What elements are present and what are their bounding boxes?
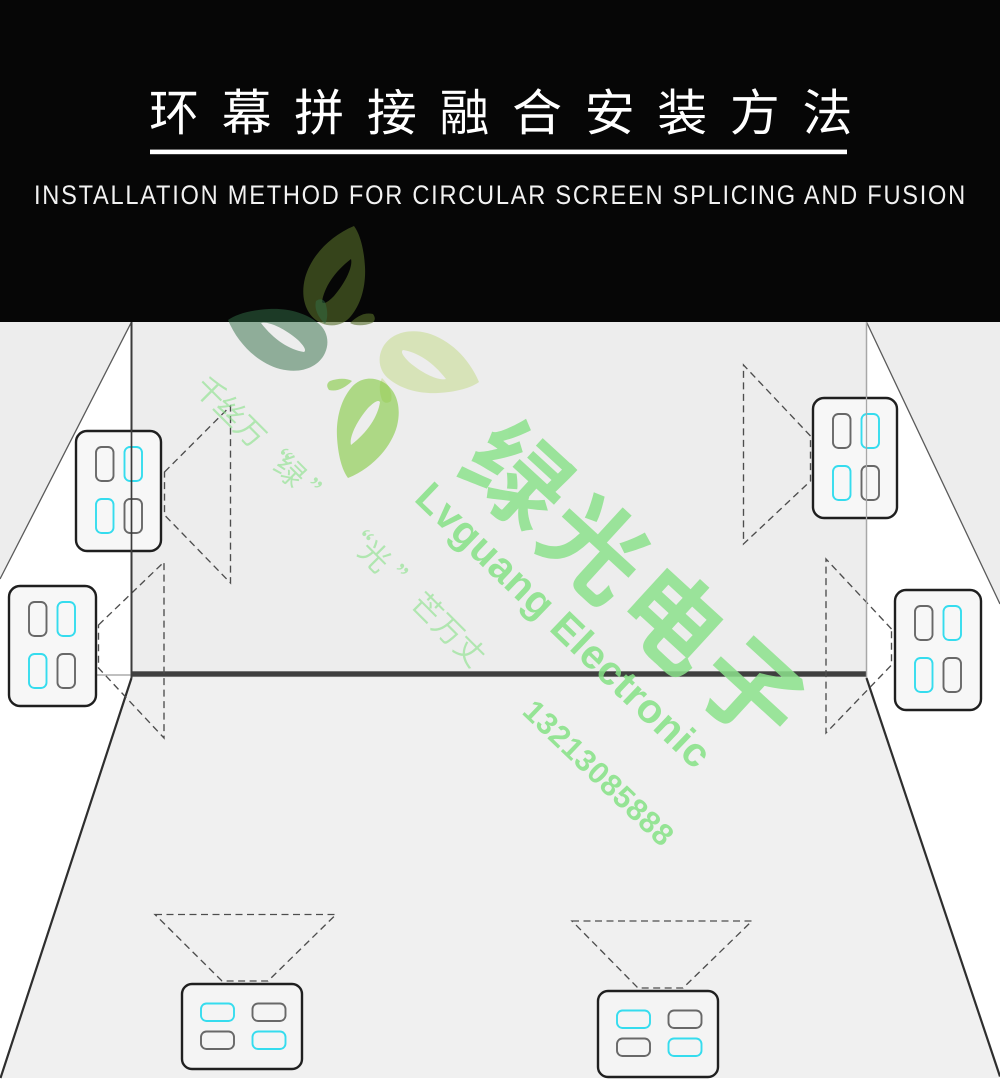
svg-text:INSTALLATION METHOD FOR CIRCUL: INSTALLATION METHOD FOR CIRCULAR SCREEN … xyxy=(34,180,967,210)
